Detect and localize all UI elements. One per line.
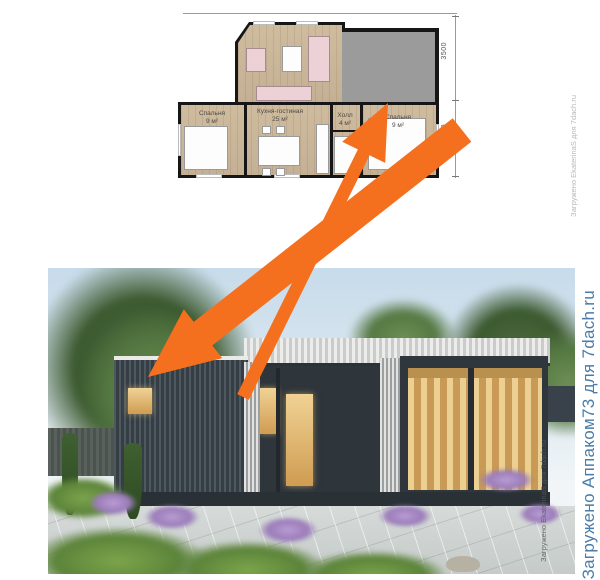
- floor-plan: 3500 3500: [178, 12, 468, 184]
- watermark-photo-small: Загружено EkaterinaS для 7dach.ru: [539, 440, 548, 562]
- window: [436, 124, 439, 152]
- bed: [184, 126, 228, 170]
- page: 3500 3500: [0, 0, 600, 580]
- window: [253, 21, 275, 25]
- door-lit: [286, 394, 313, 486]
- curtain-top: [408, 368, 542, 378]
- room-label-kitchen: Кухня-гостиная 25 м²: [252, 108, 308, 123]
- bathroom-fixtures: [334, 136, 359, 174]
- dimension-label-lower: 3500: [441, 124, 448, 142]
- porch-post: [276, 368, 280, 494]
- window: [196, 174, 222, 178]
- rock: [446, 556, 480, 572]
- lavender: [478, 468, 534, 492]
- wall-partition: [332, 130, 362, 132]
- watermark-photo-large: Загружено Аппаком73 для 7dach.ru: [579, 290, 599, 579]
- dimension-label-upper: 3500: [441, 42, 448, 60]
- window: [382, 174, 412, 178]
- chair: [276, 168, 285, 176]
- dining-table: [258, 136, 300, 166]
- chair: [276, 126, 285, 134]
- window-lit: [128, 388, 152, 414]
- chair: [262, 168, 271, 176]
- sofa: [256, 86, 312, 101]
- room-label-bedroom-left: Спальня 9 м²: [190, 110, 234, 125]
- wall-partition: [244, 104, 247, 176]
- dimension-tick: [452, 100, 459, 101]
- window: [296, 21, 318, 25]
- lavender: [88, 490, 138, 516]
- room-label-bedroom-right: Спальня 9 м²: [376, 114, 420, 129]
- dimension-line-right: [455, 15, 456, 178]
- glass-mullion: [468, 368, 474, 490]
- kitchen-counter: [316, 124, 329, 174]
- window: [178, 124, 181, 156]
- porch-column: [244, 362, 260, 498]
- chair: [262, 126, 271, 134]
- house-render-photo: Загружено EkaterinaS для 7dach.ru: [48, 268, 575, 574]
- wall-partition: [360, 104, 363, 176]
- lavender: [258, 516, 318, 544]
- coffee-table: [282, 46, 302, 72]
- lavender: [144, 504, 200, 530]
- armchair: [246, 48, 266, 72]
- dimension-tick: [452, 16, 459, 17]
- sofa: [308, 36, 330, 82]
- dimension-line-top: [183, 13, 457, 14]
- lavender: [378, 504, 432, 528]
- terrace-area: [342, 28, 439, 105]
- room-label-hall: Холл 4 м²: [330, 112, 360, 127]
- dimension-tick: [452, 176, 459, 177]
- watermark-plan-small: Загружено EkaterinaS для 7dach.ru: [569, 95, 578, 217]
